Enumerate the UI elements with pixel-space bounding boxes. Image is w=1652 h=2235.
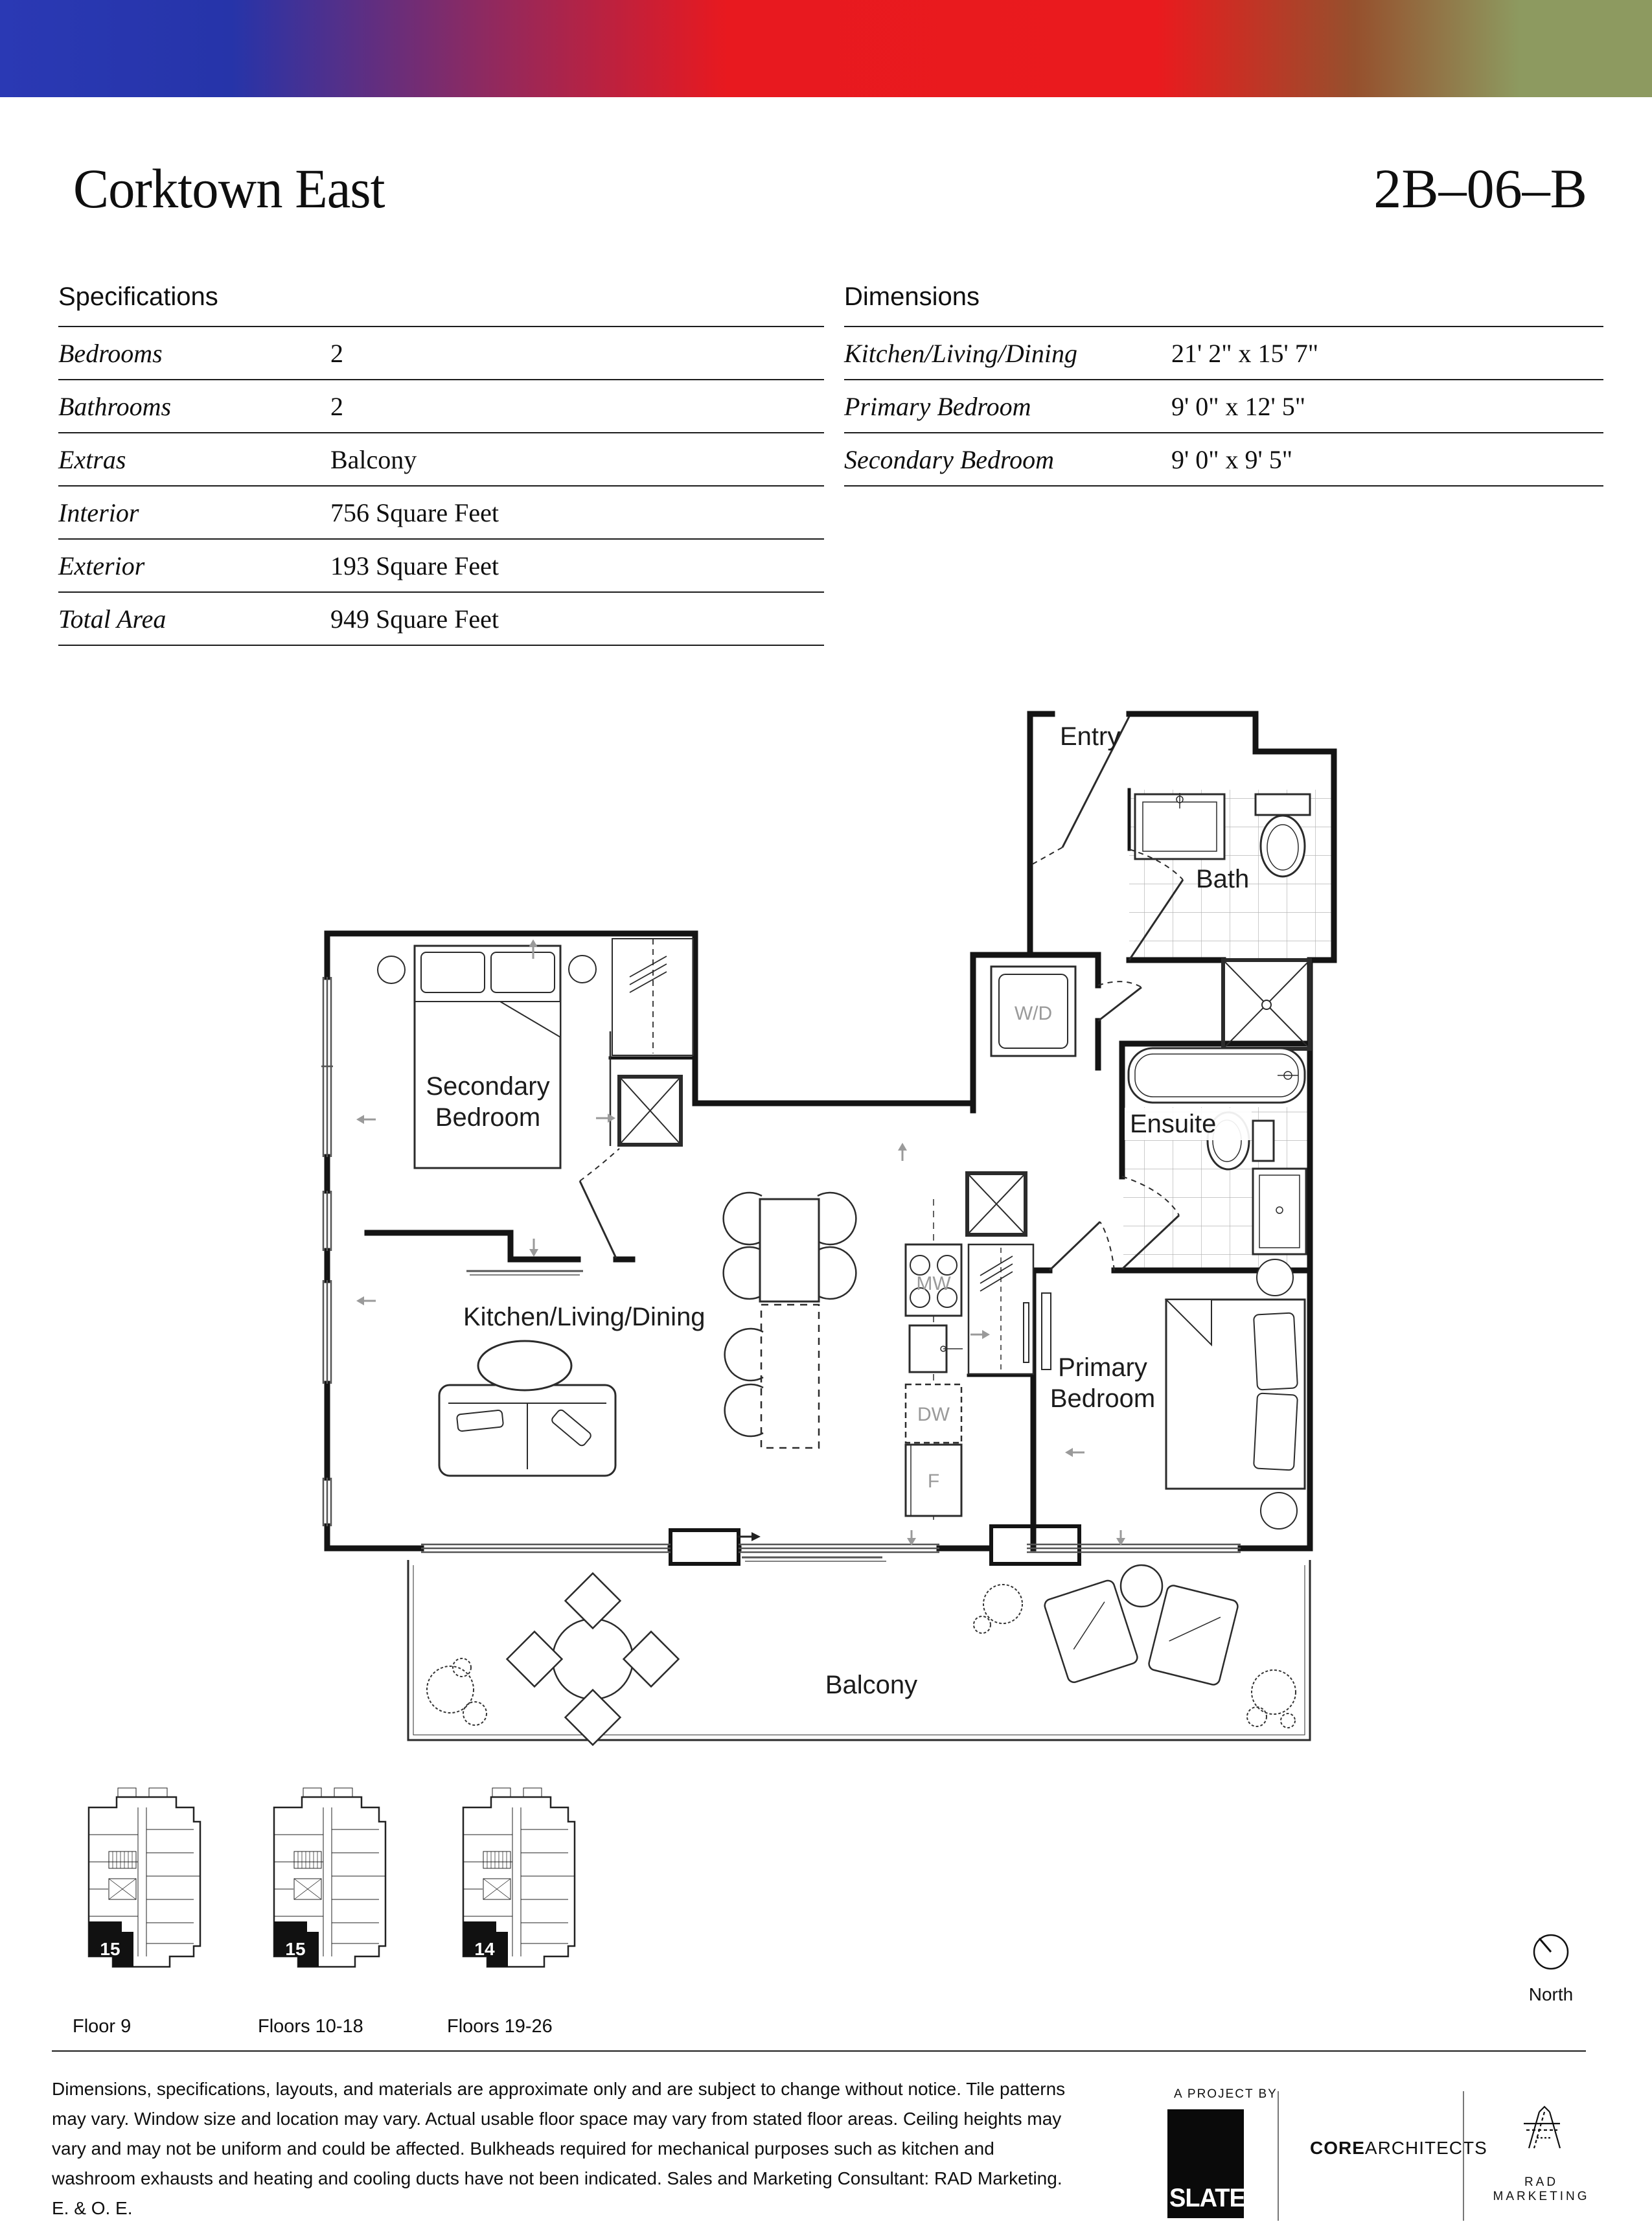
north-compass-icon [1527,1928,1575,1976]
keyplan-floors-10-18: 15 [258,1783,397,2000]
spec-value: Balcony [330,444,417,475]
dishwasher-label: DW [917,1404,950,1425]
table-row: Bathrooms 2 [58,379,824,432]
primary-bedroom-label: Bedroom [1050,1384,1155,1413]
dim-value: 9' 0" x 9' 5" [1171,444,1292,475]
spec-label: Bathrooms [58,391,171,422]
spec-label: Total Area [58,604,166,634]
table-row: Exterior 193 Square Feet [58,538,824,591]
core-architects-logo: COREARCHITECTS [1310,2138,1487,2159]
table-row: Secondary Bedroom 9' 0" x 9' 5" [844,432,1603,487]
keyplan-caption: Floors 10-18 [258,2016,363,2037]
spec-label: Exterior [58,551,144,581]
logo-divider [1278,2091,1279,2221]
core-architects-bold: CORE [1310,2138,1365,2158]
entry-label: Entry [1060,722,1120,751]
specifications-heading: Specifications [58,282,824,312]
slate-logo: SLATE [1167,2109,1244,2218]
table-row: Extras Balcony [58,432,824,485]
dim-label: Primary Bedroom [844,391,1031,422]
fridge-label: F [928,1471,939,1492]
door-swings [580,716,1183,1270]
logo-divider [1463,2091,1464,2221]
spec-value: 2 [330,338,343,369]
keyplan-caption: Floor 9 [73,2016,131,2037]
spec-label: Extras [58,444,126,475]
rad-marketing-icon [1520,2104,1564,2155]
secondary-bedroom-label: Bedroom [435,1103,540,1132]
dimensions-table: Dimensions Kitchen/Living/Dining 21' 2" … [844,282,1603,487]
spec-value: 756 Square Feet [330,498,499,528]
brand-gradient-banner [0,0,1652,97]
dim-value: 21' 2" x 15' 7" [1171,338,1318,369]
keyplan-unit-number: 15 [100,1939,120,1959]
legal-disclaimer: Dimensions, specifications, layouts, and… [52,2074,1082,2223]
slate-wordmark: SLATE [1169,2184,1242,2213]
balcony-label: Balcony [825,1671,917,1699]
dimensions-heading: Dimensions [844,282,1603,312]
spec-value: 193 Square Feet [330,551,499,581]
keyplan-floor-9: 15 [73,1783,212,2000]
footer-divider [52,2050,1586,2052]
north-label: North [1513,1984,1589,2005]
spec-label: Bedrooms [58,338,163,369]
kitchen-living-dining-label: Kitchen/Living/Dining [463,1303,706,1331]
secondary-bedroom-label: Secondary [426,1072,549,1101]
unit-code: 2B–06–B [1373,161,1587,216]
unit-floorplan-drawing: Entry Bath W/D Secondary Bedroom Kitchen… [317,684,1367,1762]
north-indicator: North [1513,1928,1589,2005]
bath-label: Bath [1196,865,1249,893]
table-row: Interior 756 Square Feet [58,485,824,538]
table-row: Bedrooms 2 [58,326,824,379]
washer-dryer-label: W/D [1015,1003,1052,1024]
ensuite-label: Ensuite [1130,1110,1216,1138]
table-row: Kitchen/Living/Dining 21' 2" x 15' 7" [844,326,1603,379]
spec-value: 2 [330,391,343,422]
table-row: Primary Bedroom 9' 0" x 12' 5" [844,379,1603,432]
keyplan-floors-19-26: 14 [447,1783,586,2000]
project-kicker: A PROJECT BY [1174,2087,1278,2102]
spec-value: 949 Square Feet [330,604,499,634]
rad-marketing-wordmark: RAD MARKETING [1486,2175,1596,2204]
specifications-table: Specifications Bedrooms 2 Bathrooms 2 Ex… [58,282,824,646]
table-row: Total Area 949 Square Feet [58,591,824,646]
keyplan-unit-number: 15 [285,1939,305,1959]
keyplan-unit-number: 14 [474,1939,495,1959]
spec-label: Interior [58,498,139,528]
microwave-label: MW [916,1273,951,1294]
keyplan-caption: Floors 19-26 [447,2016,553,2037]
dim-value: 9' 0" x 12' 5" [1171,391,1305,422]
core-architects-rest: ARCHITECTS [1365,2138,1487,2158]
balcony-zone [408,1560,1310,1745]
primary-bedroom-label: Primary [1058,1353,1147,1382]
floorplan-sheet: Corktown East 2B–06–B Specifications Bed… [0,0,1652,2235]
dim-label: Secondary Bedroom [844,444,1054,475]
dim-label: Kitchen/Living/Dining [844,338,1077,369]
page-title: Corktown East [73,161,385,216]
